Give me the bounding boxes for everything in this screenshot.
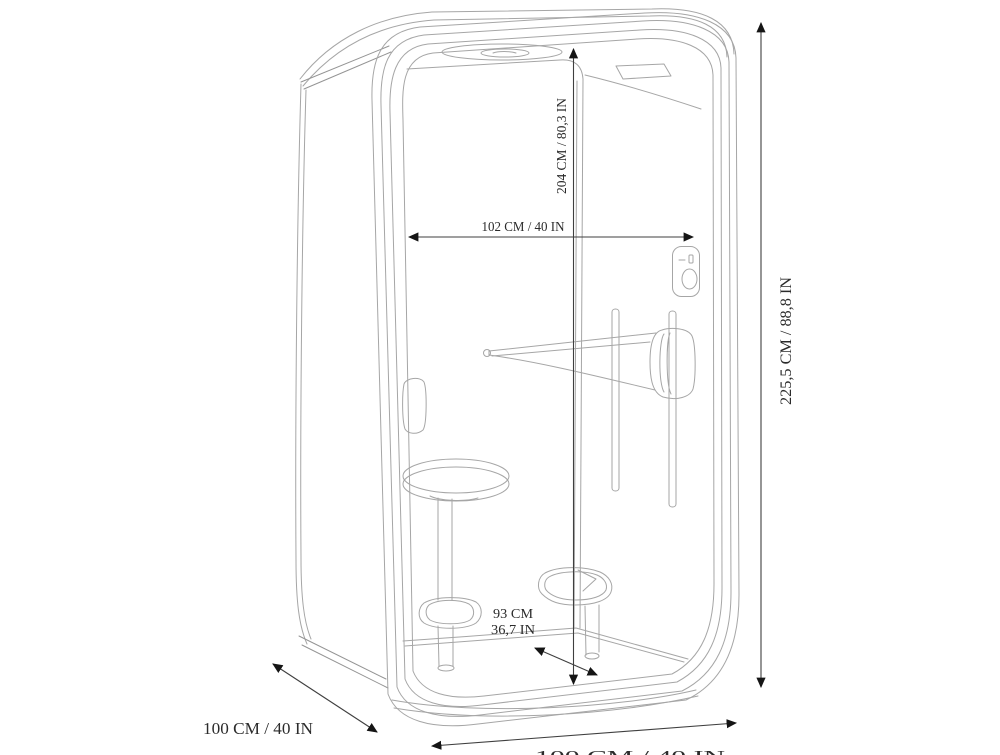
table-mount xyxy=(650,328,695,398)
dim-interior-height-label: 204 CM / 80,3 IN xyxy=(555,98,570,194)
dimension-diagram: 204 CM / 80,3 IN 102 CM / 40 IN 225,5 CM… xyxy=(0,0,1000,755)
dim-interior-width-label: 102 CM / 40 IN xyxy=(482,220,565,235)
dim-interior-width: 102 CM / 40 IN xyxy=(409,220,693,237)
dim-exterior-height: 225,5 CM / 88,8 IN xyxy=(761,23,795,687)
control-panel xyxy=(673,247,700,297)
dim-interior-height: 204 CM / 80,3 IN xyxy=(555,49,574,684)
dim-exterior-width: 100 CM / 40 IN xyxy=(432,723,736,755)
bottom-sill xyxy=(392,690,698,716)
air-vent xyxy=(616,64,671,79)
dimension-annotations: 204 CM / 80,3 IN 102 CM / 40 IN 225,5 CM… xyxy=(203,23,795,755)
table-top xyxy=(489,333,656,390)
stool-seat xyxy=(403,459,509,493)
dim-exterior-depth: 100 CM / 40 IN xyxy=(203,664,377,738)
table-rail-left xyxy=(612,309,619,491)
ceiling-light xyxy=(442,44,562,60)
corner-tray xyxy=(538,568,611,659)
dim-exterior-depth-label: 100 CM / 40 IN xyxy=(203,719,313,738)
table-rail-right xyxy=(669,311,676,507)
dim-seat-height: 93 CM 36,7 IN xyxy=(491,606,597,675)
dim-seat-height-label-cm: 93 CM xyxy=(493,606,533,621)
dim-exterior-width-label: 100 CM / 40 IN xyxy=(535,747,725,755)
dim-exterior-height-label: 225,5 CM / 88,8 IN xyxy=(778,277,795,405)
stool-column xyxy=(438,498,452,600)
dim-seat-height-label-in: 36,7 IN xyxy=(491,622,535,637)
booth-drawing-svg: 204 CM / 80,3 IN 102 CM / 40 IN 225,5 CM… xyxy=(0,0,1000,755)
stool-backrest xyxy=(403,378,427,433)
interior-walls xyxy=(403,60,701,662)
wall-table xyxy=(484,309,696,507)
